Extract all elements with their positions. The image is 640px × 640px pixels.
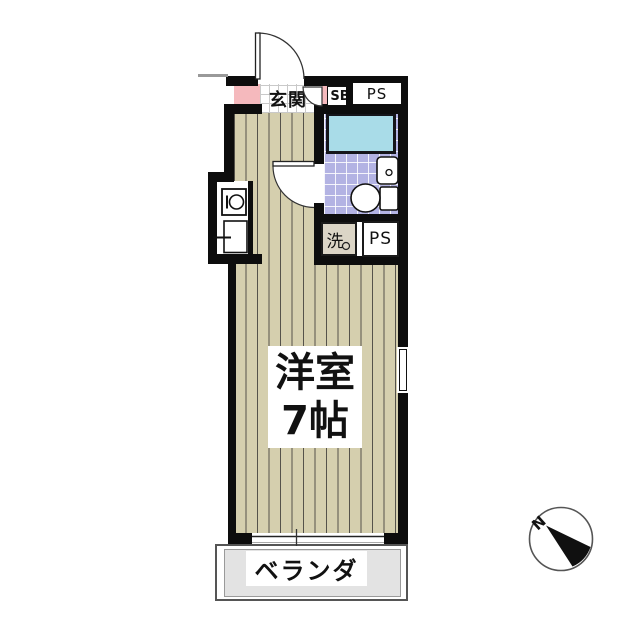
room-name-text: 洋室 bbox=[275, 349, 355, 397]
entrance-door-leaf bbox=[256, 33, 261, 79]
bathtub bbox=[326, 113, 396, 154]
pipe-space-top-label: PS bbox=[353, 83, 401, 104]
party-wall-line bbox=[198, 74, 228, 77]
balcony-label: ベランダ bbox=[246, 551, 367, 586]
wall-top-left bbox=[226, 76, 258, 86]
entrance-door bbox=[256, 33, 305, 79]
north-needle-icon bbox=[546, 526, 591, 567]
entrance-label: 玄関 bbox=[262, 86, 314, 112]
entrance-door-arc bbox=[258, 33, 304, 79]
pipe-space-mid-label: PS bbox=[362, 221, 399, 257]
washing-machine-space: 洗 bbox=[321, 222, 357, 256]
side-window bbox=[399, 349, 407, 391]
room-size-text: 7帖 bbox=[281, 397, 349, 445]
compass-rose: N bbox=[528, 508, 592, 571]
wall-utility-bottom bbox=[314, 256, 408, 265]
compass-north-label: N bbox=[528, 512, 549, 534]
floor-plan: SB PS 洗 PS 玄関 洋室 7帖 ベランダ bbox=[0, 0, 640, 640]
storage-block bbox=[234, 84, 260, 106]
wall-kitchen-alcove-left bbox=[208, 172, 217, 264]
room-label: 洋室 7帖 bbox=[268, 346, 362, 448]
wall-right bbox=[398, 76, 408, 546]
bathroom-door-opening bbox=[314, 164, 324, 203]
compass-circle bbox=[530, 508, 593, 571]
kitchen-counter-edge bbox=[248, 181, 253, 255]
wall-left-upper bbox=[224, 104, 234, 182]
wall-left-lower bbox=[228, 254, 236, 546]
